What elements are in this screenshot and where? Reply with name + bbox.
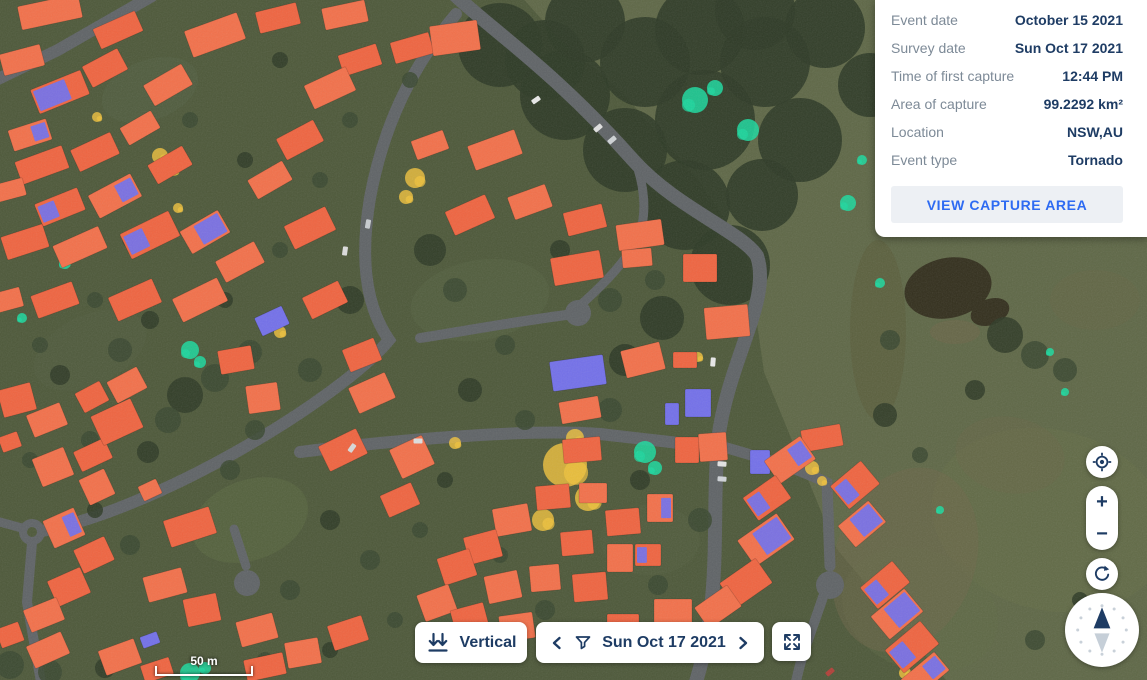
building-overlay	[562, 436, 602, 463]
locate-me-button[interactable]	[1086, 446, 1118, 478]
building-overlay	[675, 437, 699, 463]
info-value: October 15 2021	[1015, 12, 1123, 28]
capture-info-panel: Event date October 15 2021 Survey date S…	[875, 0, 1147, 237]
building-overlay	[673, 352, 697, 368]
info-label: Event type	[891, 152, 957, 168]
info-row-area-of-capture: Area of capture 99.2292 km²	[891, 90, 1123, 118]
building-overlay	[685, 389, 711, 417]
info-label: Location	[891, 124, 944, 140]
building-overlay	[647, 494, 673, 522]
fullscreen-button[interactable]	[772, 622, 811, 661]
fullscreen-icon	[782, 632, 802, 652]
building-overlay	[607, 544, 633, 572]
survey-date-picker: Sun Oct 17 2021	[536, 622, 764, 663]
building-overlay	[621, 248, 652, 269]
info-row-event-date: Event date October 15 2021	[891, 6, 1123, 34]
building-overlay	[605, 508, 641, 537]
info-value: Sun Oct 17 2021	[1015, 40, 1123, 56]
building-overlay	[560, 530, 594, 557]
vertical-button-label: Vertical	[460, 634, 517, 652]
align-bottom-icon	[426, 632, 450, 654]
building-overlay	[683, 254, 717, 282]
previous-survey-button[interactable]	[548, 633, 566, 653]
info-label: Area of capture	[891, 96, 987, 112]
locate-icon	[1092, 452, 1112, 472]
info-value: 12:44 PM	[1062, 68, 1123, 84]
chevron-right-icon	[736, 635, 750, 651]
compass-button[interactable]	[1065, 593, 1139, 667]
vertical-view-button[interactable]: Vertical	[415, 622, 527, 663]
rotate-reset-icon	[1092, 564, 1112, 584]
chevron-left-icon	[550, 635, 564, 651]
info-row-survey-date: Survey date Sun Oct 17 2021	[891, 34, 1123, 62]
building-overlay	[492, 503, 532, 537]
building-overlay	[429, 20, 481, 56]
info-row-location: Location NSW,AU	[891, 118, 1123, 146]
building-overlay	[529, 564, 561, 593]
info-value: 99.2292 km²	[1044, 96, 1123, 112]
rotate-reset-button[interactable]	[1086, 558, 1118, 590]
building-overlay	[579, 483, 607, 503]
compass-icon	[1071, 593, 1133, 667]
building-overlay	[284, 637, 322, 669]
survey-date-display[interactable]: Sun Oct 17 2021	[574, 634, 726, 652]
info-value: NSW,AU	[1067, 124, 1123, 140]
view-capture-area-button[interactable]: VIEW CAPTURE AREA	[891, 186, 1123, 223]
info-value: Tornado	[1068, 152, 1123, 168]
building-overlay	[535, 484, 571, 511]
building-overlay	[245, 382, 281, 414]
building-overlay	[704, 304, 751, 340]
info-label: Event date	[891, 12, 958, 28]
building-overlay	[665, 403, 679, 425]
zoom-in-button[interactable]: +	[1086, 486, 1118, 518]
info-row-event-type: Event type Tornado	[891, 146, 1123, 174]
zoom-out-button[interactable]: −	[1086, 518, 1118, 550]
info-label: Time of first capture	[891, 68, 1014, 84]
info-row-time-first-capture: Time of first capture 12:44 PM	[891, 62, 1123, 90]
zoom-control: + −	[1086, 486, 1118, 550]
info-label: Survey date	[891, 40, 966, 56]
filter-icon	[574, 634, 592, 651]
app-window: Event date October 15 2021 Survey date S…	[0, 0, 1147, 680]
building-overlay	[572, 572, 608, 603]
building-overlay	[698, 432, 728, 462]
building-overlay	[635, 544, 661, 566]
survey-date-label: Sun Oct 17 2021	[602, 634, 726, 652]
next-survey-button[interactable]	[734, 633, 752, 653]
